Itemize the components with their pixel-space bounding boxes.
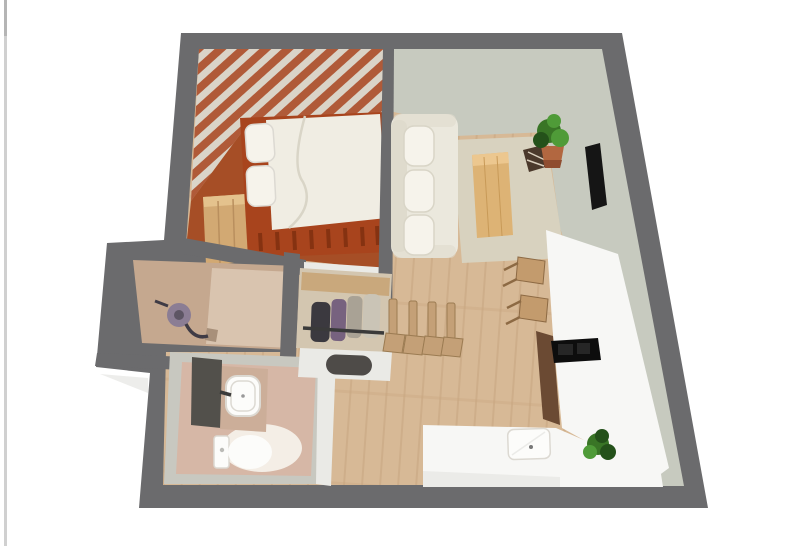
double-bed (240, 112, 392, 258)
kitchen-sink (507, 428, 550, 459)
shower-panel (191, 357, 222, 428)
floorplan-page (0, 0, 800, 546)
doormat (326, 354, 373, 376)
duvet (266, 114, 387, 230)
pillow (246, 165, 276, 206)
floorplan-canvas (0, 0, 800, 546)
balcony-floor-light-patch (206, 268, 293, 348)
sofa-cushion (404, 215, 434, 255)
coat-closet (296, 268, 392, 381)
cooktop (551, 338, 601, 363)
bedroom (186, 49, 392, 270)
coffee-table (472, 152, 513, 238)
pillow (245, 123, 276, 163)
page-edge-line (4, 0, 7, 546)
toilet (214, 435, 272, 469)
sofa (391, 114, 458, 258)
sofa-cushion (404, 126, 434, 166)
sofa-cushion (404, 170, 434, 212)
